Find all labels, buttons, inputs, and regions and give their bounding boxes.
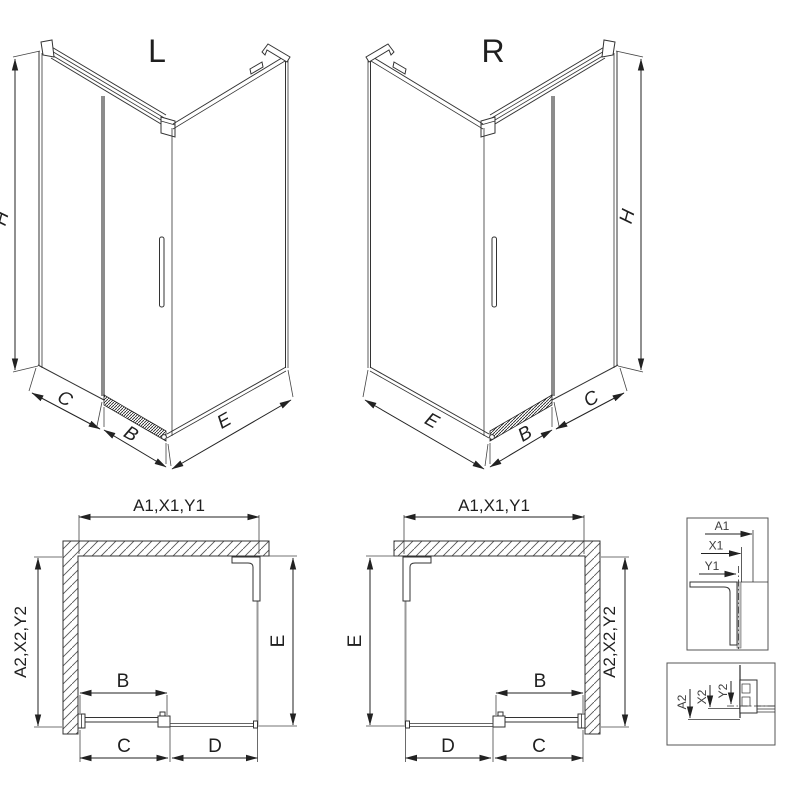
- dim-depth-label: A2,X2,Y2: [600, 606, 619, 678]
- dim-fixed-label: C: [117, 736, 131, 757]
- detail-width-references: A1 X1 Y1: [687, 518, 768, 650]
- variant-right-label: R: [481, 33, 504, 69]
- iso-right-side-wall: [490, 40, 618, 441]
- guide-block: [493, 716, 505, 727]
- dim-width-top-label: A1,X1,Y1: [133, 496, 205, 515]
- technical-drawing-sheet: L: [0, 0, 800, 800]
- rail-wall-cap: [602, 40, 615, 57]
- dim-x1-label: X1: [709, 539, 724, 553]
- iso-view-left: L: [0, 33, 293, 469]
- dim-a1-label: A1: [715, 519, 730, 533]
- glass-section: [737, 582, 741, 648]
- dim-side-label: E: [268, 635, 289, 648]
- dim-width-top-label: A1,X1,Y1: [458, 496, 530, 515]
- door-assembly: [78, 712, 258, 728]
- dim-height-label: H: [0, 209, 14, 228]
- plan-view-right: A1,X1,Y1 E A2,X2,Y2 B D C: [345, 496, 629, 762]
- dim-opening-label: D: [441, 736, 455, 757]
- dim-x2-label: X2: [695, 689, 709, 704]
- iso-left-dimensions: H C B E: [0, 51, 293, 469]
- dim-door-label: B: [120, 422, 142, 447]
- guide-knob: [160, 712, 165, 716]
- plan-view-left: A1,X1,Y1 A2,X2,Y2 E B C D: [11, 496, 297, 762]
- door-panel: [85, 718, 162, 723]
- dim-fixed-label: C: [580, 387, 602, 412]
- door-handle: [492, 237, 497, 307]
- dim-fixed-label: C: [54, 387, 76, 412]
- iso-view-right: R: [363, 33, 643, 469]
- door-handle: [160, 237, 165, 307]
- iso-left-side-wall: [38, 40, 166, 441]
- corner-post: [481, 117, 495, 137]
- detail-depth-references: A2 X2 Y2: [667, 663, 775, 745]
- door-assembly: [406, 712, 586, 728]
- wall-bracket-icon: [262, 44, 290, 62]
- dim-door-label: B: [534, 671, 547, 692]
- dim-depth-label: A2,X2,Y2: [11, 606, 30, 678]
- iso-right-dimensions: H C B E: [363, 51, 643, 469]
- variant-left-label: L: [148, 33, 166, 69]
- dim-door-label: B: [515, 422, 537, 447]
- dim-opening-label: D: [208, 736, 222, 757]
- dim-fixed-label: C: [532, 736, 546, 757]
- iso-left-fixed-wall: [161, 44, 290, 438]
- bracket-pad: [393, 62, 406, 74]
- rail-end-cap: [406, 721, 410, 728]
- dim-height-label: H: [616, 207, 640, 226]
- rail-end-cap: [254, 721, 258, 728]
- track-end-roller: [162, 435, 167, 440]
- drawing-canvas: L: [0, 0, 800, 800]
- corner-profile: [232, 557, 260, 601]
- wall-section: [394, 541, 600, 734]
- dim-a2-label: A2: [675, 694, 689, 709]
- dim-side-label: E: [421, 409, 443, 434]
- dim-side-label: E: [345, 635, 366, 648]
- bracket-pad: [250, 62, 263, 74]
- dim-y2-label: Y2: [716, 683, 730, 698]
- dim-side-label: E: [214, 409, 236, 434]
- rail-profile-section: [740, 680, 757, 713]
- track-end-roller: [490, 435, 495, 440]
- iso-right-fixed-wall: [366, 44, 495, 438]
- corner-profile: [403, 557, 431, 601]
- wall-section: [63, 541, 269, 734]
- rail-wall-cap: [41, 40, 54, 57]
- dim-y1-label: Y1: [705, 559, 720, 573]
- wall-bracket-icon: [366, 44, 394, 62]
- corner-post: [161, 117, 175, 137]
- guide-block: [158, 716, 170, 727]
- guide-knob: [498, 712, 503, 716]
- dim-door-label: B: [117, 671, 130, 692]
- door-panel: [501, 718, 578, 723]
